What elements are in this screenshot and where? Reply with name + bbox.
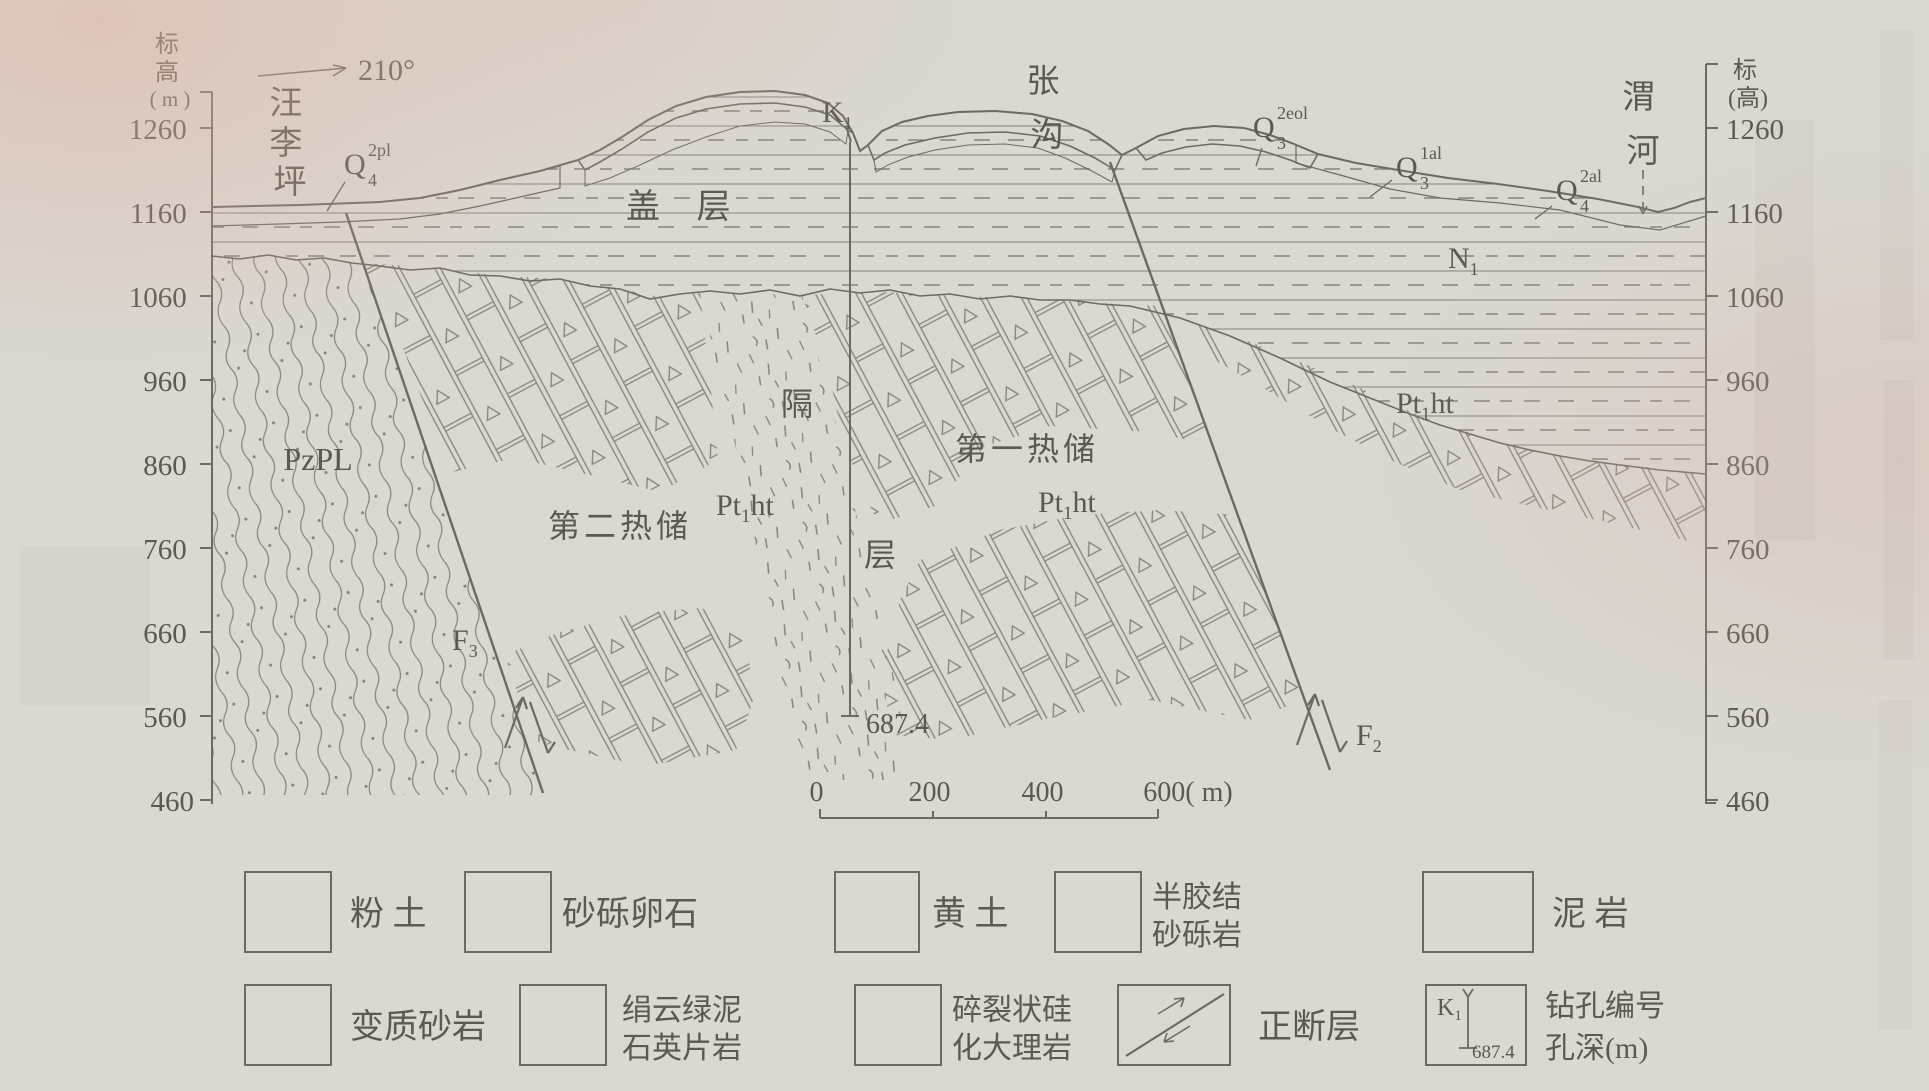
label-pzpl: PzPL xyxy=(283,441,352,477)
svg-text:Q: Q xyxy=(1396,151,1418,184)
svg-text:钻孔编号: 钻孔编号 xyxy=(1545,990,1665,1023)
svg-text:变质砂岩: 变质砂岩 xyxy=(350,1008,486,1046)
legend-item-semicemented: 半胶结 砂砾岩 xyxy=(1055,872,1242,952)
legend-item-gravel: 砂砾卵石 xyxy=(465,872,698,952)
right-axis: 标 (高) 1260 1160 1060 960 860 760 660 560… xyxy=(1706,57,1791,818)
silt-swatch-icon xyxy=(245,872,331,952)
compass-arrow-icon xyxy=(258,65,346,76)
label-aquitard-top: 隔 xyxy=(781,386,813,422)
legend-item-loess: 黄 土 xyxy=(835,872,1009,952)
legend-item-mudstone: 泥 岩 xyxy=(1423,872,1629,952)
svg-text:4: 4 xyxy=(1580,196,1589,216)
svg-text:3: 3 xyxy=(1277,133,1286,153)
legend: 粉 土 砂砾卵石 黄 土 半胶结 砂砾岩 泥 岩 变质砂岩 绢云绿泥 石英片岩 … xyxy=(245,872,1665,1065)
marble-swatch-icon xyxy=(855,985,941,1065)
legend-item-metasandstone: 变质砂岩 xyxy=(245,985,486,1065)
reservoir1-upper-band xyxy=(802,292,1212,524)
svg-text:砂砾岩: 砂砾岩 xyxy=(1152,919,1242,952)
svg-text:孔深(m): 孔深(m) xyxy=(1545,1032,1648,1065)
svg-text:正断层: 正断层 xyxy=(1258,1008,1360,1046)
svg-text:黄 土: 黄 土 xyxy=(932,895,1009,933)
semicemented-swatch-icon xyxy=(1055,872,1141,952)
svg-text:泥 岩: 泥 岩 xyxy=(1552,895,1629,933)
label-pt1ht-left: Pt1ht xyxy=(716,489,775,527)
svg-text:2pl: 2pl xyxy=(368,140,391,160)
svg-text:3: 3 xyxy=(1420,173,1429,193)
svg-text:K1: K1 xyxy=(1437,995,1462,1024)
svg-text:粉 土: 粉 土 xyxy=(350,895,427,933)
label-f2: F2 xyxy=(1356,719,1382,756)
svg-text:2eol: 2eol xyxy=(1277,103,1308,123)
svg-text:Q: Q xyxy=(1253,111,1275,144)
schist-swatch-icon xyxy=(520,985,606,1065)
legend-item-borehole: K1 687.4 钻孔编号 孔深(m) xyxy=(1426,985,1665,1065)
svg-text:1al: 1al xyxy=(1420,143,1442,163)
metasandstone-swatch-icon xyxy=(245,985,331,1065)
place-zhanggou: 张 沟 xyxy=(1026,64,1067,154)
svg-text:4: 4 xyxy=(368,170,377,190)
reservoir1-lower-band xyxy=(880,510,1305,740)
svg-text:半胶结: 半胶结 xyxy=(1152,881,1242,914)
svg-text:化大理岩: 化大理岩 xyxy=(952,1032,1072,1065)
compass-bearing-label: 210° xyxy=(358,54,415,87)
legend-item-silt: 粉 土 xyxy=(245,872,427,952)
svg-text:0 200 400 600( m): 0 200 400 600( m) xyxy=(810,777,1233,808)
label-aquitard-bottom: 层 xyxy=(864,537,896,573)
legend-item-schist: 绢云绿泥 石英片岩 xyxy=(520,985,742,1065)
svg-text:2al: 2al xyxy=(1580,166,1602,186)
svg-text:Q: Q xyxy=(1556,174,1578,207)
gravel-swatch-icon xyxy=(465,872,551,952)
label-pt1ht-right: Pt1ht xyxy=(1038,486,1097,524)
svg-text:砂砾卵石: 砂砾卵石 xyxy=(562,895,698,933)
label-k1: K1 xyxy=(822,96,853,133)
right-axis-ticks: 1260 1160 1060 960 860 760 660 560 460 xyxy=(1726,114,1791,818)
left-axis-title: 标 高 ( m ) xyxy=(150,31,191,111)
reservoir2-lower-band xyxy=(505,608,754,766)
left-axis: 标 高 ( m ) 1260 1160 1060 960 860 760 660… xyxy=(129,31,212,818)
left-axis-ticks: 1260 1160 1060 960 860 760 660 560 460 xyxy=(129,114,194,818)
label-reservoir-second: 第二热储 xyxy=(548,508,692,544)
compass: 210° xyxy=(258,54,415,87)
scale-bar: 0 200 400 600( m) xyxy=(810,777,1233,818)
geological-cross-section-figure: 标 高 ( m ) 1260 1160 1060 960 860 760 660… xyxy=(0,0,1929,1091)
legend-item-marble: 碎裂状硅 化大理岩 xyxy=(855,985,1072,1065)
legend-item-normal-fault: 正断层 xyxy=(1118,985,1360,1065)
svg-text:Q: Q xyxy=(344,148,366,181)
svg-text:碎裂状硅: 碎裂状硅 xyxy=(952,994,1072,1027)
svg-text:绢云绿泥: 绢云绿泥 xyxy=(622,994,742,1027)
loess-swatch-icon xyxy=(835,872,919,952)
label-borehole-depth: 687.4 xyxy=(866,709,929,740)
svg-text:石英片岩: 石英片岩 xyxy=(622,1032,742,1065)
label-reservoir-first: 第一热储 xyxy=(955,431,1099,467)
right-axis-title: 标 (高) xyxy=(1728,57,1768,112)
svg-text:687.4: 687.4 xyxy=(1472,1042,1515,1063)
place-wangliping: 汪 李 坪 xyxy=(269,86,310,201)
cross-section-svg: 标 高 ( m ) 1260 1160 1060 960 860 760 660… xyxy=(0,0,1929,1091)
place-weihe: 渭 河 xyxy=(1622,80,1663,170)
label-cover-layer: 盖 层 xyxy=(626,188,745,226)
label-q4-2pl: Q 2pl 4 xyxy=(327,140,391,211)
mudstone-swatch-icon xyxy=(1423,872,1533,952)
